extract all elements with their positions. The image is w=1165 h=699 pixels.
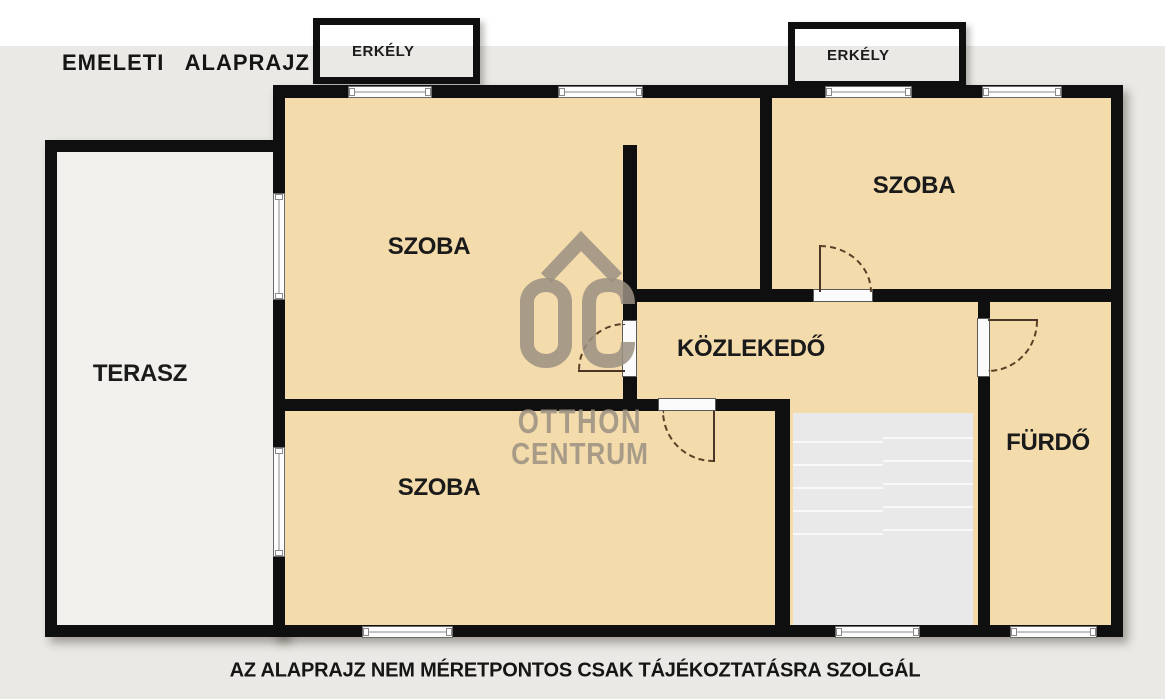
balcony-1-label: ERKÉLY — [320, 43, 414, 60]
watermark-text-line2: CENTRUM — [511, 436, 649, 472]
window-symbol — [273, 447, 285, 557]
window-symbol — [835, 626, 920, 638]
stair-treads-right-flight — [883, 416, 973, 548]
balcony-2: ERKÉLY — [788, 22, 966, 88]
window-symbol — [273, 193, 285, 300]
wall-szoba-topright-left — [760, 91, 772, 302]
door-frame — [658, 398, 716, 411]
balcony-1: ERKÉLY — [313, 18, 480, 84]
wall-stairwell-left — [775, 399, 790, 637]
wall-outer-bottom — [45, 625, 1123, 637]
window-symbol — [558, 86, 643, 98]
window-symbol — [825, 86, 912, 98]
balcony-2-label: ERKÉLY — [795, 47, 889, 64]
wall-terrace-top — [45, 140, 285, 152]
room-label-szoba-bottom: SZOBA — [398, 474, 481, 502]
room-label-terasz: TERASZ — [93, 360, 187, 388]
window-symbol — [982, 86, 1062, 98]
room-label-furdo: FÜRDŐ — [1006, 429, 1090, 457]
wall-outer-right — [1111, 85, 1123, 637]
wall-hall-top — [623, 289, 1123, 302]
room-label-szoba-top-right: SZOBA — [873, 172, 956, 200]
floor-plan-page: EMELETI ALAPRAJZ ERKÉLY ERKÉLY — [0, 0, 1165, 699]
room-label-kozlekedo: KÖZLEKEDŐ — [677, 335, 825, 363]
room-label-szoba-top-left: SZOBA — [388, 233, 471, 261]
top-white-band — [0, 0, 1165, 46]
terrace-floor — [51, 146, 279, 631]
stair-treads-left-flight — [793, 420, 883, 555]
window-symbol — [1010, 626, 1097, 638]
window-symbol — [348, 86, 432, 98]
watermark-logo-oc — [510, 270, 650, 380]
page-title: EMELETI ALAPRAJZ — [62, 50, 310, 76]
window-symbol — [362, 626, 453, 638]
staircase — [793, 413, 973, 625]
wall-terrace-left — [45, 140, 57, 637]
disclaimer-text: AZ ALAPRAJZ NEM MÉRETPONTOS CSAK TÁJÉKOZ… — [230, 660, 921, 683]
door-leaf — [713, 411, 715, 462]
